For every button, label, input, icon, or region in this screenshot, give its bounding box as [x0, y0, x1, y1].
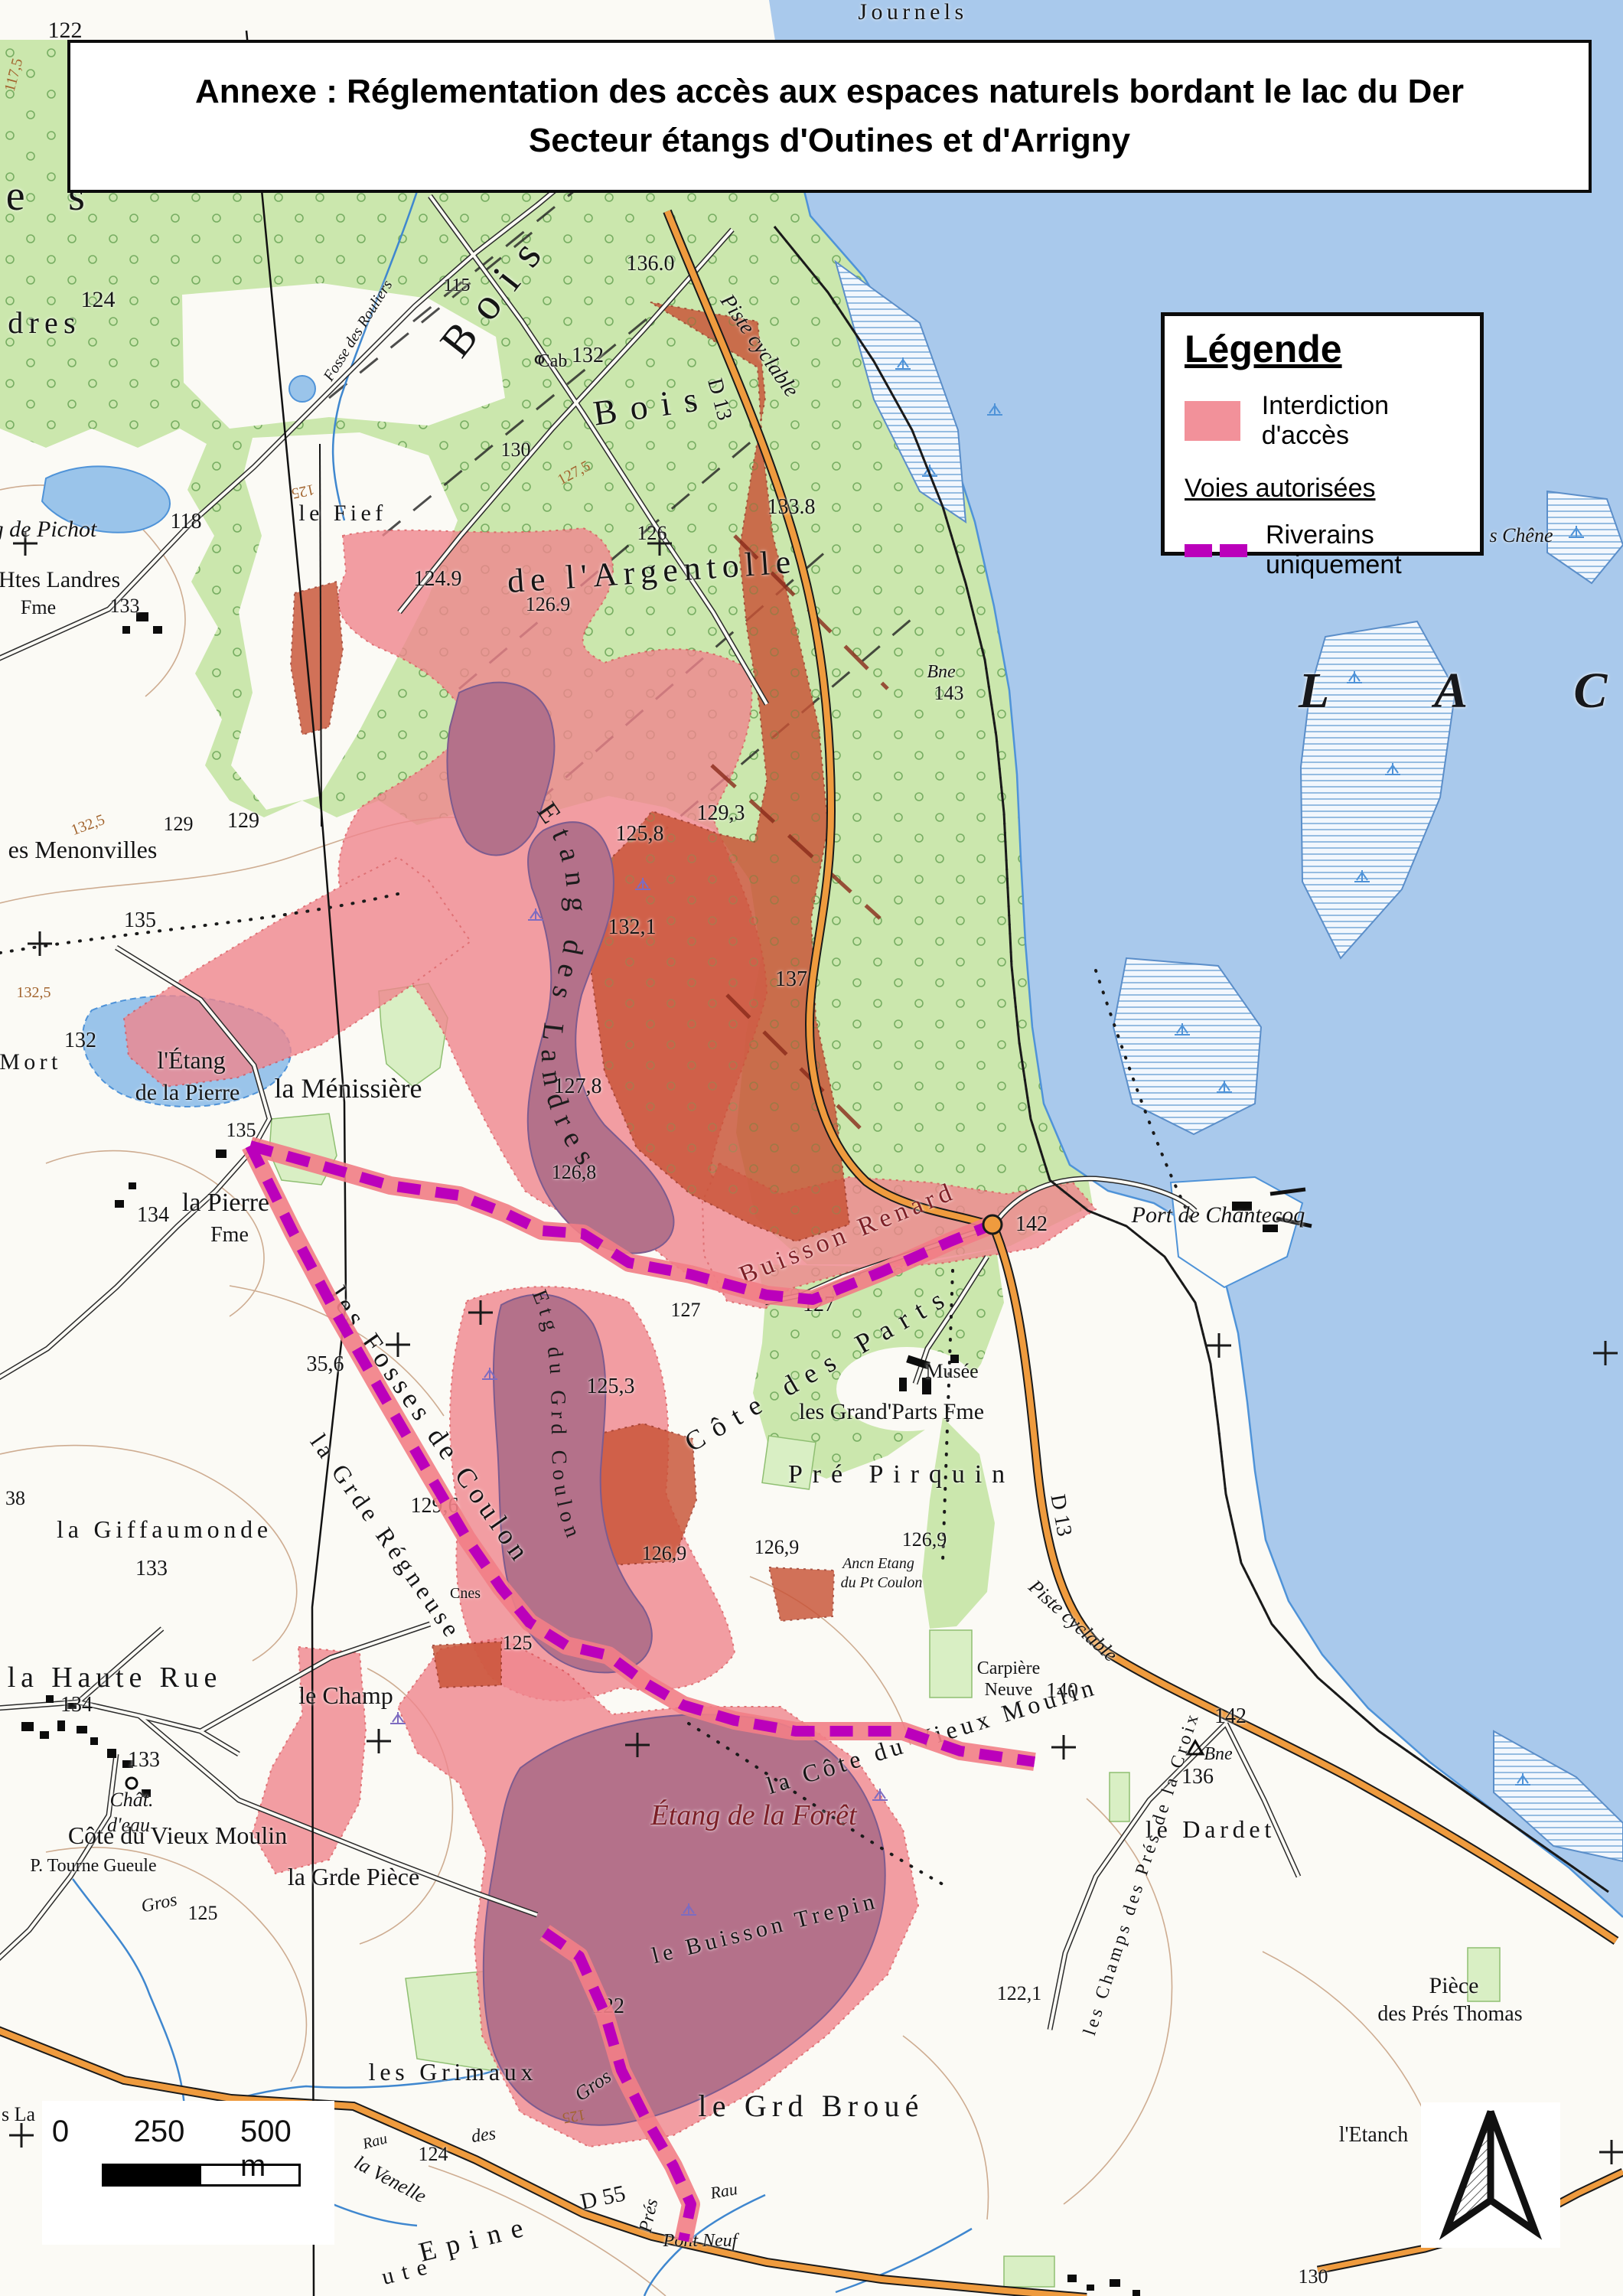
scale-250: 250 [134, 2115, 185, 2149]
map-title-line1: Annexe : Réglementation des accès aux es… [195, 73, 1464, 111]
voies-autorisees-heading: Voies autorisées [1185, 474, 1480, 504]
north-arrow-icon [1421, 2102, 1560, 2248]
title-box: Annexe : Réglementation des accès aux es… [67, 40, 1592, 193]
riverains-label: Riverains uniquement [1266, 520, 1480, 580]
north-arrow [1421, 2102, 1560, 2248]
legend-box: Légende Interdiction d'accès Voies autor… [1161, 312, 1484, 556]
scale-bar: 0 250 500 m [42, 2101, 334, 2245]
scale-0: 0 [52, 2115, 69, 2149]
scale-bar-graphic [102, 2164, 301, 2187]
map-title-line2: Secteur étangs d'Outines et d'Arrigny [529, 122, 1130, 160]
interdiction-label: Interdiction d'accès [1262, 391, 1480, 451]
legend-heading: Légende [1185, 327, 1480, 371]
riverains-dash-swatch [1185, 544, 1247, 557]
interdiction-swatch [1185, 401, 1240, 441]
map-screenshot: 122Journelse s124dres117,5Fosse des Roul… [0, 0, 1623, 2296]
